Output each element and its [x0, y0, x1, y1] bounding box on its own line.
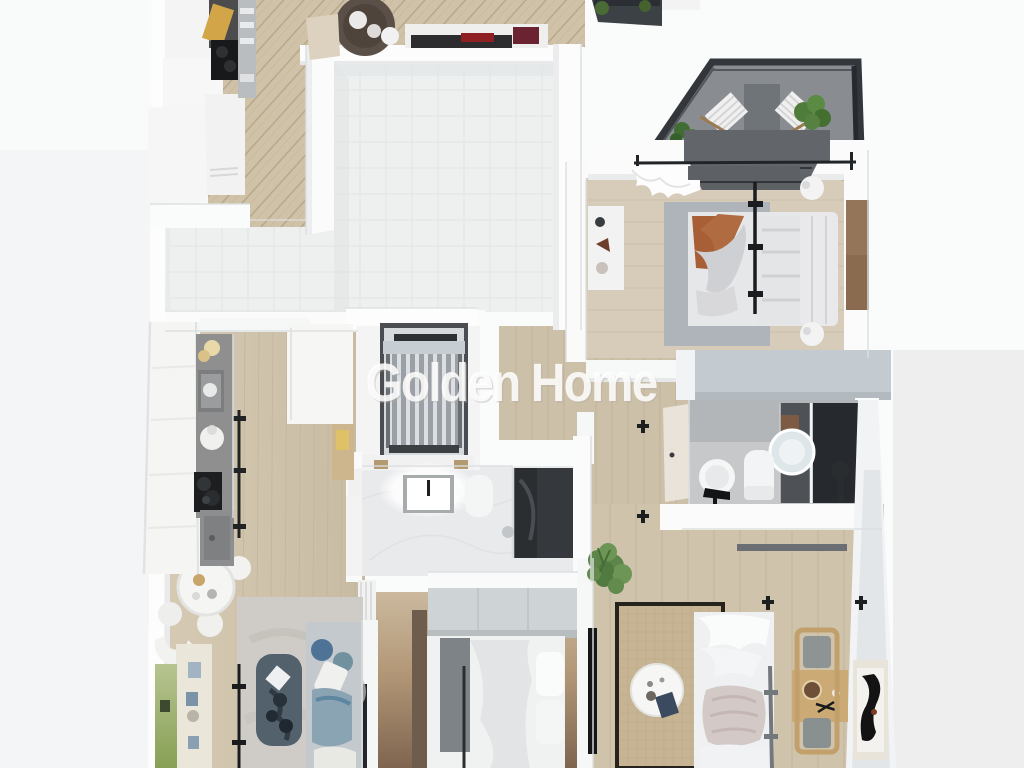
svg-text:Golden Home: Golden Home — [365, 352, 657, 412]
